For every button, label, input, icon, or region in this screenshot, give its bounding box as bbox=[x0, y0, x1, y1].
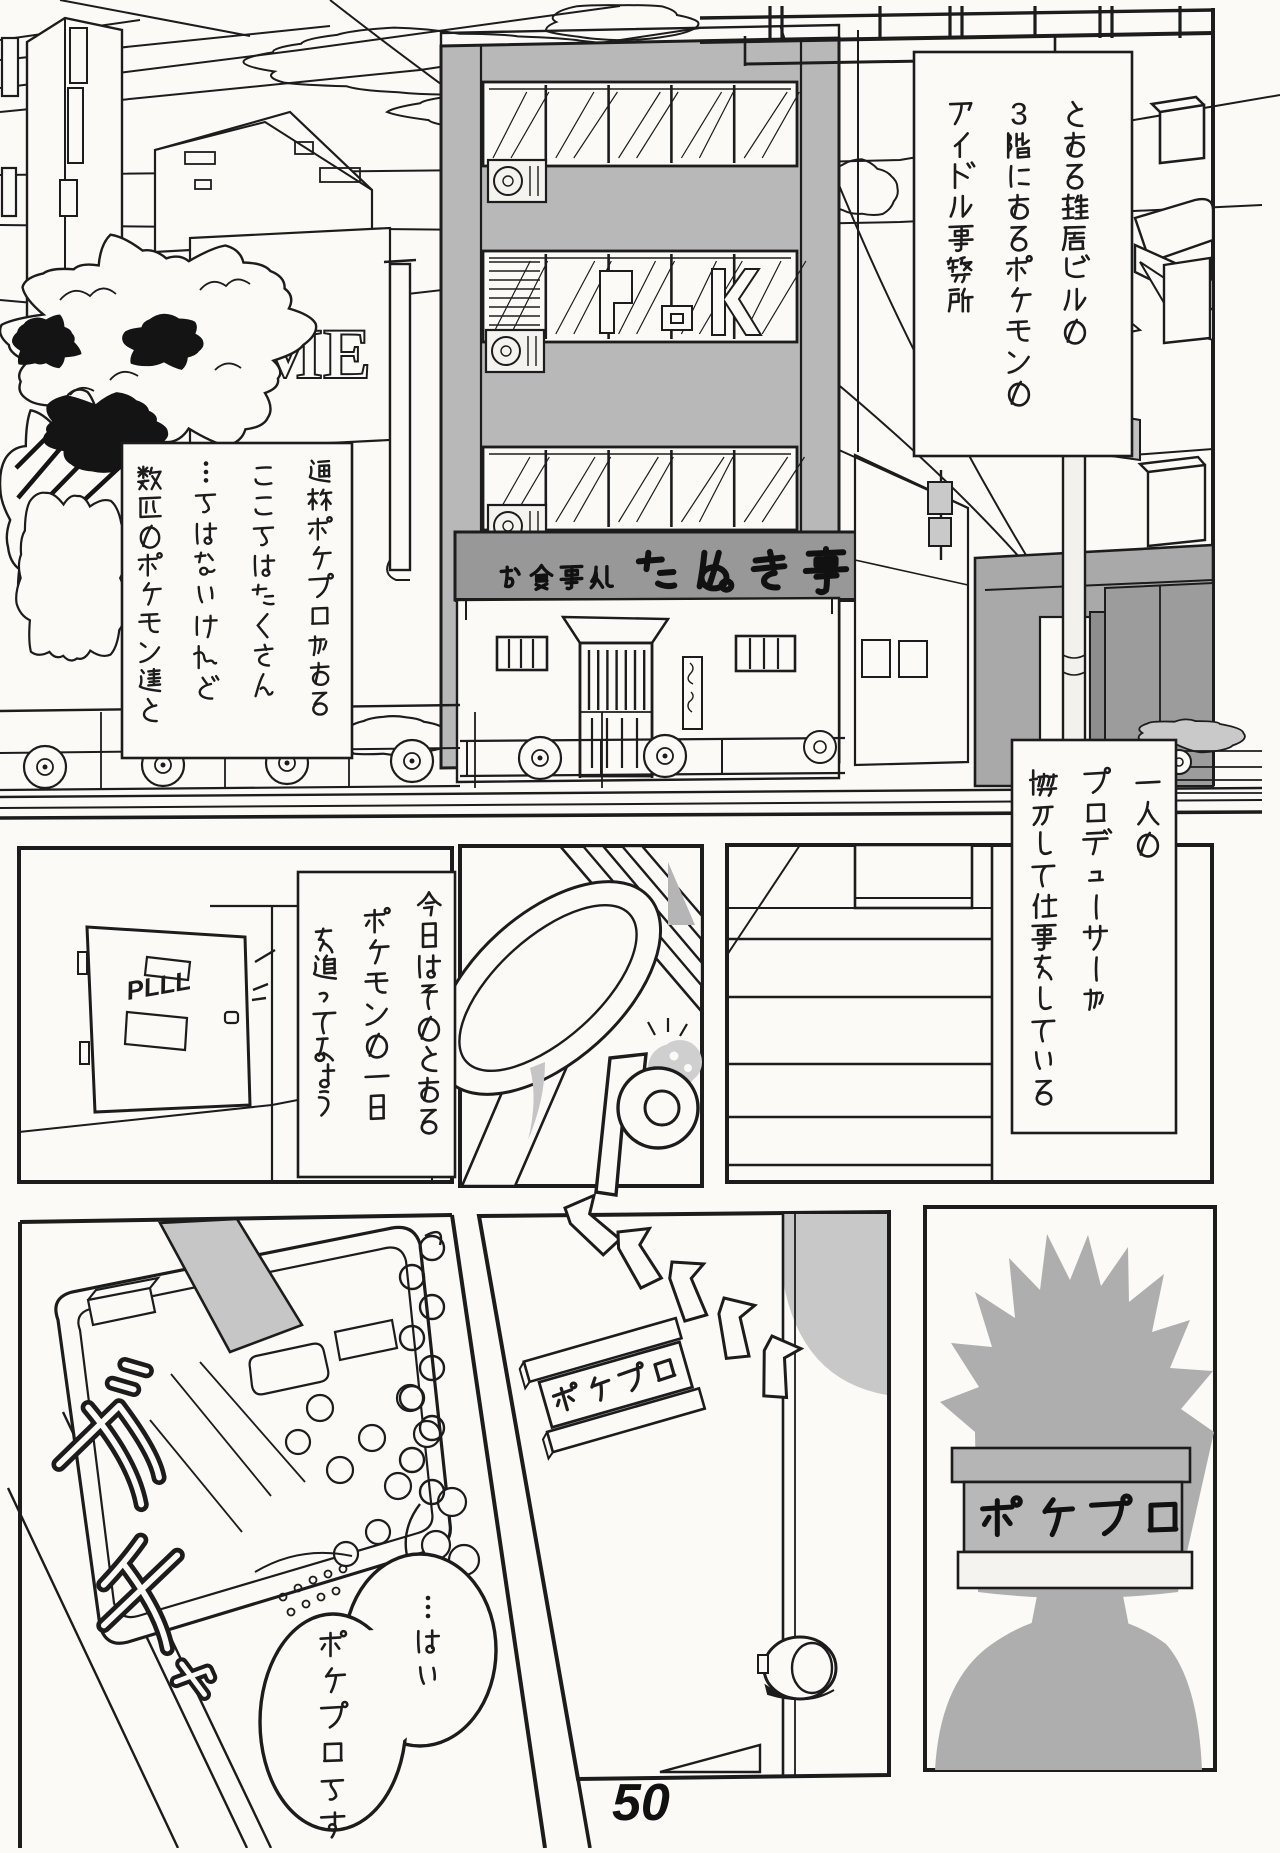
svg-text:3: 3 bbox=[1010, 96, 1028, 132]
svg-text:50: 50 bbox=[612, 1774, 670, 1832]
